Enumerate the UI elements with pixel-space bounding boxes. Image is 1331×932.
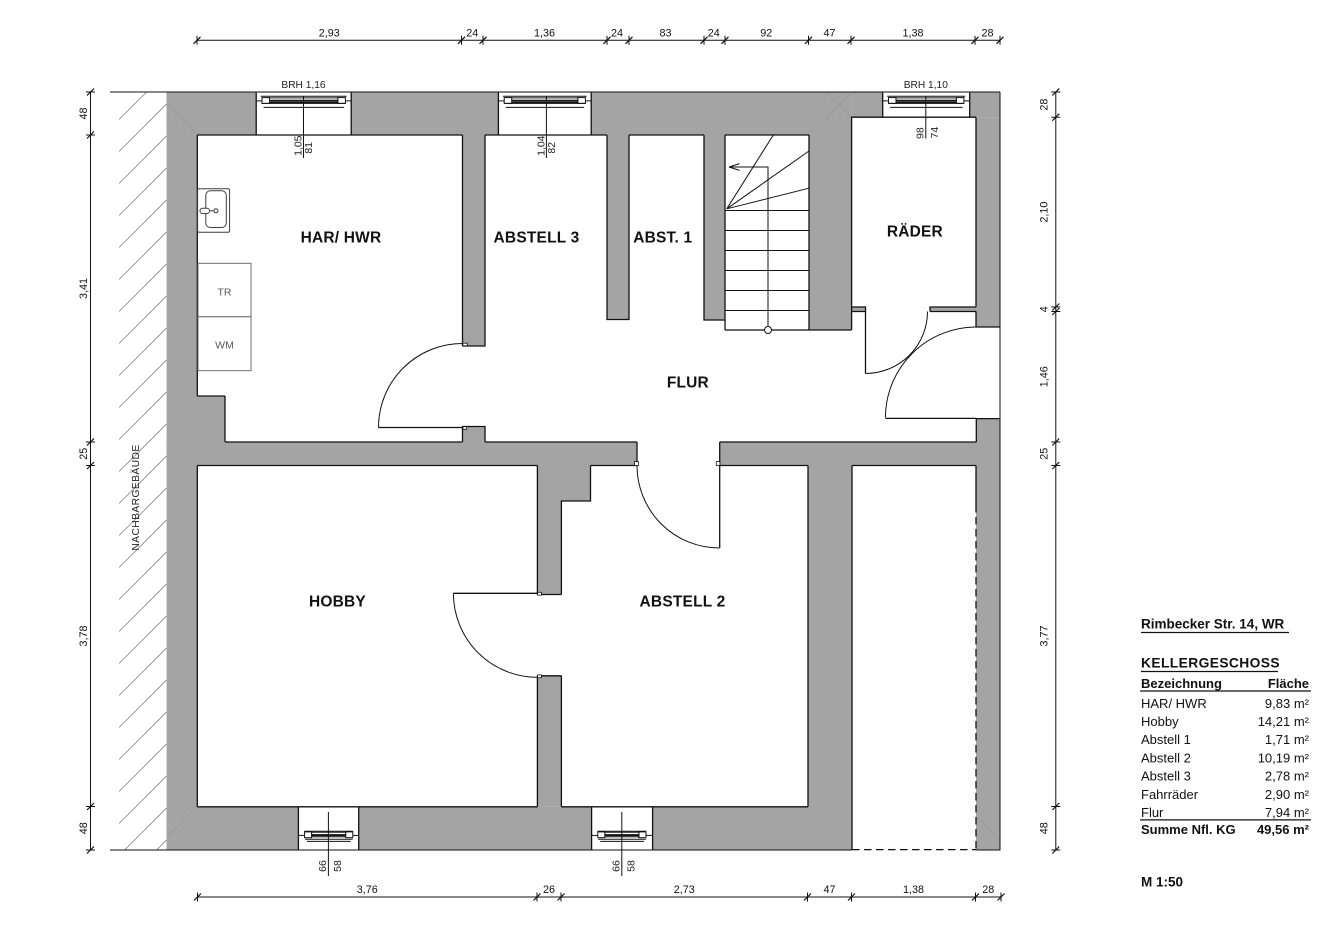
svg-text:1,46: 1,46 — [1039, 366, 1051, 387]
svg-text:81: 81 — [303, 142, 315, 154]
svg-text:25: 25 — [1039, 448, 1051, 460]
svg-text:58: 58 — [625, 860, 637, 872]
svg-text:Fahrräder: Fahrräder — [1141, 787, 1199, 802]
svg-text:92: 92 — [760, 27, 772, 39]
svg-text:Hobby: Hobby — [1141, 714, 1179, 729]
svg-text:KELLERGESCHOSS: KELLERGESCHOSS — [1141, 655, 1280, 670]
svg-text:HOBBY: HOBBY — [309, 594, 366, 611]
svg-text:82: 82 — [546, 142, 558, 154]
svg-text:RÄDER: RÄDER — [887, 224, 943, 241]
svg-text:Bezeichnung: Bezeichnung — [1141, 676, 1222, 691]
svg-text:ABST. 1: ABST. 1 — [633, 229, 692, 246]
svg-text:7,94 m²: 7,94 m² — [1265, 805, 1310, 820]
svg-text:1,38: 1,38 — [903, 884, 924, 896]
svg-text:HAR/ HWR: HAR/ HWR — [1141, 696, 1207, 711]
svg-text:NACHBARGEBÄUDE: NACHBARGEBÄUDE — [130, 444, 142, 550]
svg-text:10,19 m²: 10,19 m² — [1258, 750, 1310, 765]
svg-text:14,21 m²: 14,21 m² — [1258, 714, 1310, 729]
svg-text:47: 47 — [823, 884, 835, 896]
svg-text:Abstell 1: Abstell 1 — [1141, 732, 1191, 747]
svg-text:28: 28 — [982, 884, 994, 896]
svg-text:24: 24 — [466, 27, 478, 39]
svg-text:48: 48 — [1039, 822, 1051, 834]
svg-text:3,78: 3,78 — [78, 625, 90, 646]
svg-text:28: 28 — [981, 27, 993, 39]
svg-text:ABSTELL 3: ABSTELL 3 — [494, 229, 580, 246]
svg-text:28: 28 — [1039, 99, 1051, 111]
svg-text:24: 24 — [708, 27, 720, 39]
svg-text:3,41: 3,41 — [78, 278, 90, 299]
svg-text:26: 26 — [543, 884, 555, 896]
svg-text:Abstell 3: Abstell 3 — [1141, 769, 1191, 784]
svg-text:BRH 1,16: BRH 1,16 — [281, 80, 326, 91]
svg-text:2,73: 2,73 — [674, 884, 695, 896]
svg-text:47: 47 — [823, 27, 835, 39]
svg-text:BRH 1,10: BRH 1,10 — [904, 80, 949, 91]
svg-text:ABSTELL 2: ABSTELL 2 — [640, 594, 726, 611]
svg-text:83: 83 — [659, 27, 671, 39]
svg-text:WM: WM — [215, 340, 234, 352]
svg-text:9,83 m²: 9,83 m² — [1265, 696, 1310, 711]
svg-text:4: 4 — [1039, 306, 1051, 312]
svg-text:25: 25 — [78, 448, 90, 460]
svg-text:3,76: 3,76 — [357, 884, 378, 896]
svg-text:1,38: 1,38 — [902, 27, 923, 39]
svg-text:Flur: Flur — [1141, 805, 1164, 820]
svg-text:1,36: 1,36 — [534, 27, 555, 39]
svg-text:Abstell 2: Abstell 2 — [1141, 750, 1191, 765]
svg-text:2,78 m²: 2,78 m² — [1265, 769, 1310, 784]
svg-text:49,56 m²: 49,56 m² — [1257, 822, 1310, 837]
svg-text:TR: TR — [218, 287, 232, 299]
svg-text:Rimbecker Str. 14, WR: Rimbecker Str. 14, WR — [1141, 616, 1285, 631]
svg-text:48: 48 — [78, 822, 90, 834]
svg-text:1,71 m²: 1,71 m² — [1265, 732, 1310, 747]
svg-text:Fläche: Fläche — [1268, 676, 1309, 691]
svg-text:Summe Nfl. KG: Summe Nfl. KG — [1141, 822, 1236, 837]
svg-text:2,90 m²: 2,90 m² — [1265, 787, 1310, 802]
svg-text:74: 74 — [929, 127, 941, 139]
svg-text:24: 24 — [611, 27, 623, 39]
svg-text:66: 66 — [610, 860, 622, 872]
svg-text:3,77: 3,77 — [1039, 625, 1051, 646]
svg-text:48: 48 — [78, 107, 90, 119]
svg-text:FLUR: FLUR — [667, 375, 709, 392]
svg-text:98: 98 — [914, 127, 926, 139]
svg-text:2,10: 2,10 — [1039, 202, 1051, 223]
svg-text:2,93: 2,93 — [319, 27, 340, 39]
svg-text:M 1:50: M 1:50 — [1141, 875, 1183, 890]
svg-text:58: 58 — [332, 860, 344, 872]
svg-text:HAR/ HWR: HAR/ HWR — [301, 229, 382, 246]
svg-text:66: 66 — [317, 860, 329, 872]
